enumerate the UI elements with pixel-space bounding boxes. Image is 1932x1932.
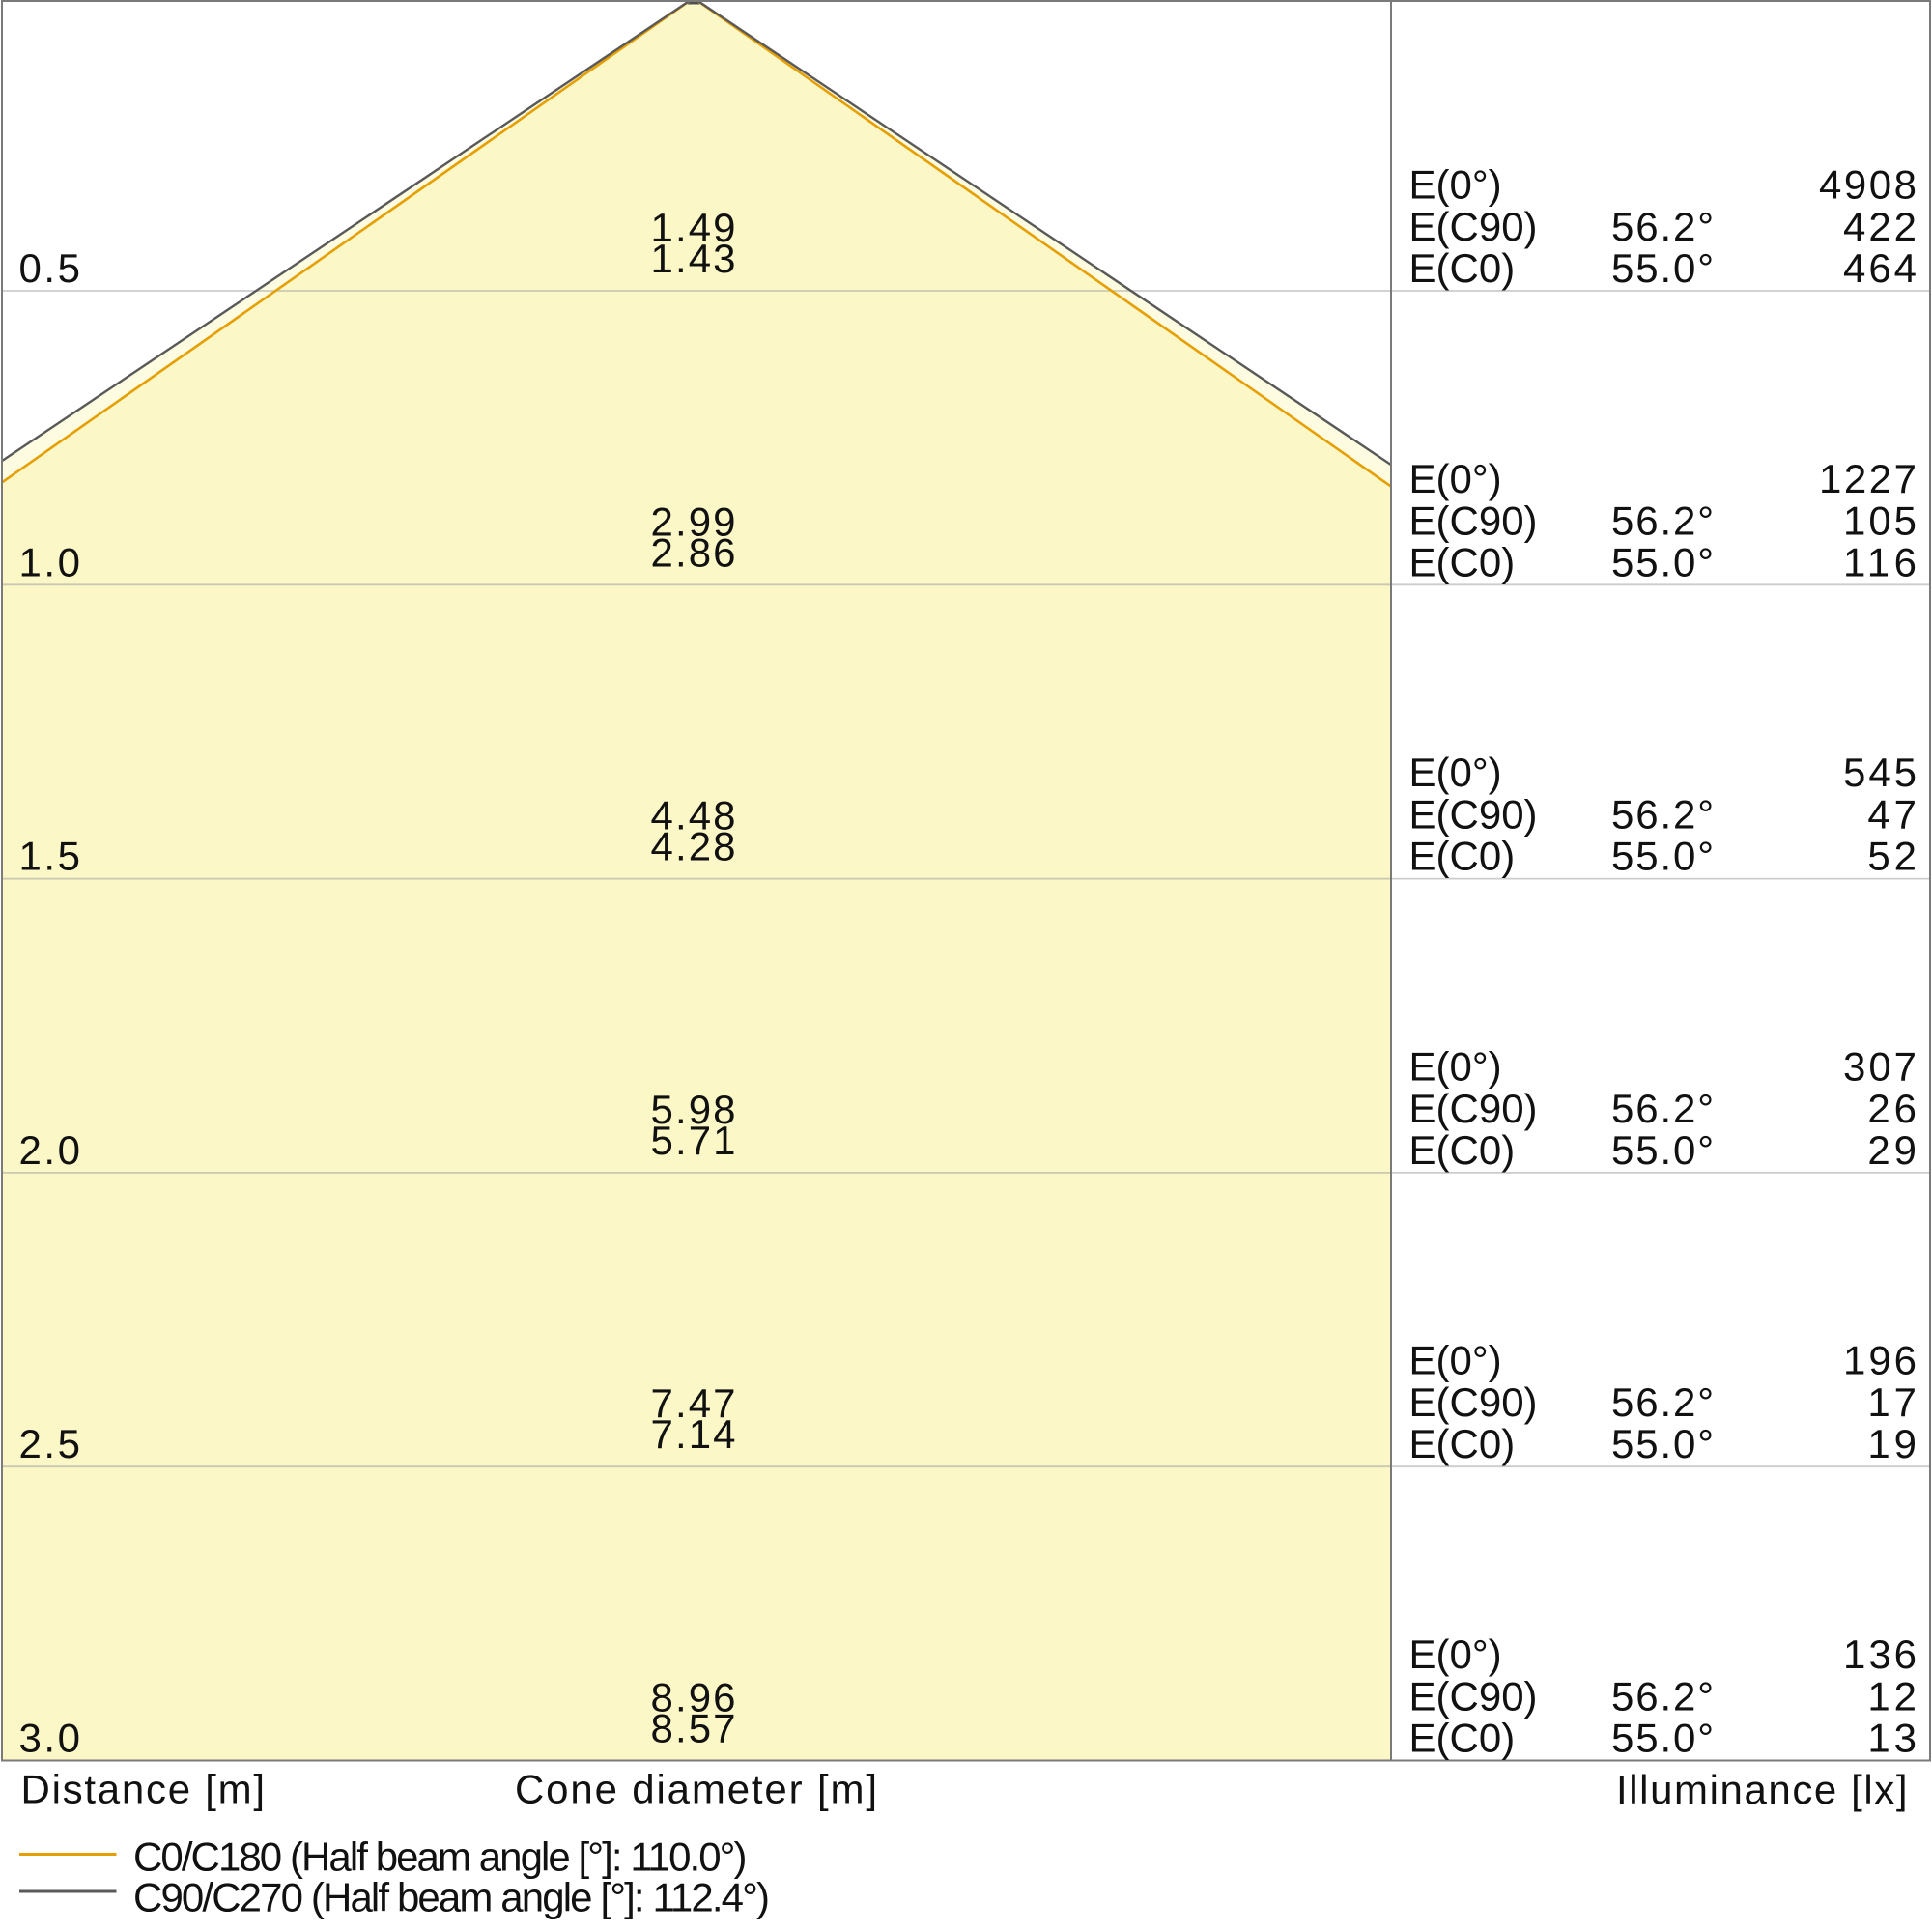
- svg-text:E(C0): E(C0): [1409, 1421, 1516, 1466]
- svg-text:E(C0): E(C0): [1409, 1127, 1516, 1173]
- svg-text:E(0°): E(0°): [1409, 1632, 1502, 1677]
- svg-text:464: 464: [1843, 245, 1917, 291]
- svg-text:0.5: 0.5: [19, 245, 81, 291]
- svg-text:2.5: 2.5: [19, 1421, 81, 1466]
- svg-text:8.57: 8.57: [651, 1706, 736, 1751]
- svg-text:Illuminance [lx]: Illuminance [lx]: [1616, 1767, 1908, 1812]
- svg-text:1.5: 1.5: [19, 834, 81, 879]
- svg-text:56.2°: 56.2°: [1611, 204, 1714, 249]
- svg-text:E(C0): E(C0): [1409, 245, 1516, 291]
- svg-text:E(0°): E(0°): [1409, 1338, 1502, 1383]
- svg-text:E(0°): E(0°): [1409, 1043, 1502, 1089]
- svg-text:56.2°: 56.2°: [1611, 497, 1714, 543]
- svg-text:55.0°: 55.0°: [1611, 245, 1714, 291]
- svg-text:E(C0): E(C0): [1409, 539, 1516, 584]
- svg-text:55.0°: 55.0°: [1611, 539, 1714, 584]
- svg-text:116: 116: [1843, 539, 1917, 584]
- svg-text:1.43: 1.43: [651, 236, 736, 281]
- svg-text:545: 545: [1843, 750, 1917, 795]
- svg-text:55.0°: 55.0°: [1611, 1716, 1714, 1761]
- svg-text:4.28: 4.28: [651, 824, 736, 869]
- svg-text:56.2°: 56.2°: [1611, 1379, 1714, 1425]
- svg-text:55.0°: 55.0°: [1611, 834, 1714, 879]
- svg-text:5.71: 5.71: [651, 1118, 736, 1163]
- svg-text:E(C90): E(C90): [1409, 497, 1538, 543]
- svg-text:C90/C270 (Half beam angle [°]:: C90/C270 (Half beam angle [°]: 112.4°): [133, 1874, 770, 1919]
- svg-text:196: 196: [1843, 1338, 1917, 1383]
- svg-text:55.0°: 55.0°: [1611, 1421, 1714, 1466]
- svg-text:E(0°): E(0°): [1409, 750, 1502, 795]
- svg-text:E(C0): E(C0): [1409, 1716, 1516, 1761]
- svg-text:56.2°: 56.2°: [1611, 1086, 1714, 1131]
- svg-text:E(C90): E(C90): [1409, 1674, 1538, 1719]
- svg-text:C0/C180 (Half beam angle [°]:: C0/C180 (Half beam angle [°]: 110.0°): [133, 1834, 748, 1880]
- svg-text:307: 307: [1843, 1043, 1917, 1089]
- svg-text:56.2°: 56.2°: [1611, 1674, 1714, 1719]
- svg-text:3.0: 3.0: [19, 1716, 81, 1761]
- svg-text:1.0: 1.0: [19, 539, 81, 584]
- svg-text:56.2°: 56.2°: [1611, 792, 1714, 838]
- svg-text:E(C90): E(C90): [1409, 1379, 1538, 1425]
- svg-text:2.86: 2.86: [651, 529, 736, 575]
- svg-text:136: 136: [1843, 1632, 1917, 1677]
- svg-text:55.0°: 55.0°: [1611, 1127, 1714, 1173]
- svg-text:E(C90): E(C90): [1409, 204, 1538, 249]
- svg-text:7.14: 7.14: [651, 1411, 736, 1457]
- svg-text:Distance [m]: Distance [m]: [21, 1767, 266, 1812]
- svg-text:422: 422: [1843, 204, 1917, 249]
- svg-text:E(0°): E(0°): [1409, 456, 1502, 501]
- svg-text:E(0°): E(0°): [1409, 162, 1502, 208]
- svg-text:E(C90): E(C90): [1409, 1086, 1538, 1131]
- svg-text:105: 105: [1843, 497, 1917, 543]
- svg-text:E(C90): E(C90): [1409, 792, 1538, 838]
- svg-text:2.0: 2.0: [19, 1127, 81, 1173]
- svg-text:E(C0): E(C0): [1409, 834, 1516, 879]
